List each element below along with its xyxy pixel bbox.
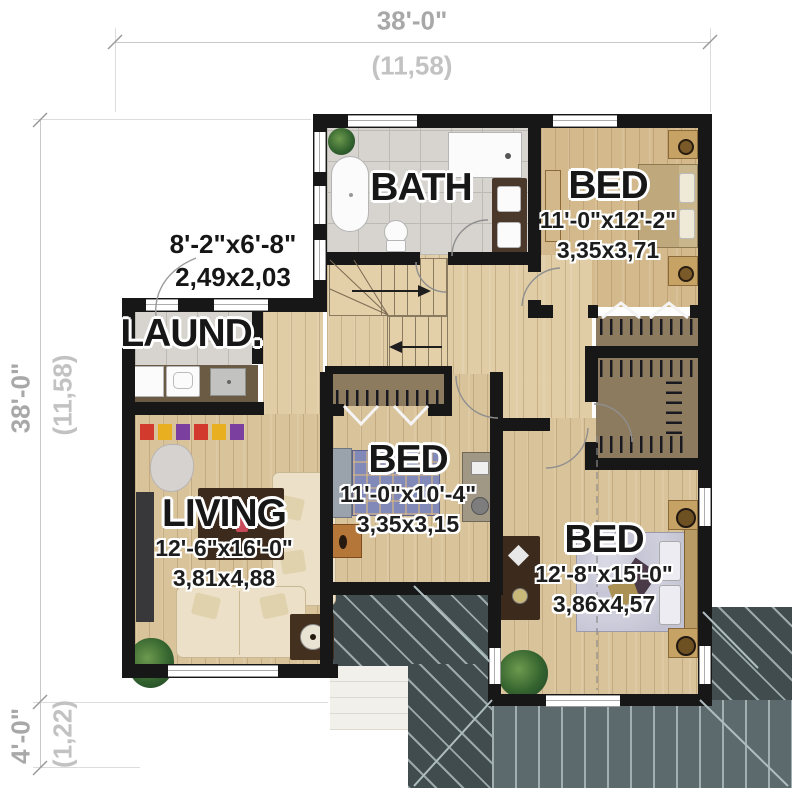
sofa <box>176 586 306 658</box>
wall <box>122 402 264 415</box>
room-dim-imperial: 12'-6"x16'-0" <box>155 533 293 563</box>
wall <box>588 305 598 318</box>
roof-section <box>408 664 492 788</box>
dim-bottomleft-metric: (1,22) <box>48 700 79 768</box>
wall <box>320 372 333 678</box>
wall <box>585 458 712 470</box>
bath-vanity <box>492 178 527 258</box>
wall <box>585 356 598 402</box>
living-label: LIVING 12'-6"x16'-0" 3,81x4,88 <box>155 494 293 594</box>
room-dim-imperial: 12'-8"x15'-0" <box>535 559 673 589</box>
room-name: LAUND. <box>120 314 261 353</box>
porch-roof <box>330 664 408 730</box>
wall <box>488 582 501 706</box>
sink <box>497 186 521 212</box>
window <box>699 646 711 684</box>
dim-left-metric: (11,58) <box>48 355 79 436</box>
dim-top-metric: (11,58) <box>372 51 453 82</box>
utility-sink <box>210 368 246 396</box>
wall <box>122 298 135 678</box>
wall <box>541 305 553 318</box>
dim-bottomleft-imperial: 4'-0" <box>6 708 37 764</box>
desk <box>498 536 540 620</box>
room-dim-metric: 3,35x3,15 <box>340 509 476 539</box>
laundry-dim-callout: 8'-2"x6'-8" 2,49x2,03 <box>170 228 297 293</box>
laundry-label: LAUND. <box>120 314 261 353</box>
stair-treads <box>381 259 447 315</box>
nightstand <box>668 628 698 658</box>
wall <box>320 404 344 416</box>
room-dim-metric: 2,49x2,03 <box>175 262 291 292</box>
window <box>699 488 711 526</box>
window <box>546 695 620 707</box>
dim-left-imperial: 38'-0" <box>6 363 37 434</box>
floor-plan: 38'-0" (11,58) 38'-0" (11,58) 4'-0" (1,2… <box>0 0 800 800</box>
dim-left-line <box>40 120 41 768</box>
room-name: BED <box>340 440 476 479</box>
window <box>348 115 417 127</box>
bed-top-label: BED 11'-0"x12'-2" 3,35x3,71 <box>540 166 676 266</box>
window <box>214 299 268 311</box>
wall <box>490 372 503 594</box>
wall <box>503 418 550 431</box>
window <box>553 115 617 127</box>
dim-top-imperial: 38'-0" <box>377 6 448 37</box>
wall <box>528 300 541 318</box>
window <box>314 240 326 280</box>
wall <box>320 582 503 595</box>
room-dim-metric: 3,86x4,57 <box>535 589 673 619</box>
room-name: BATH <box>370 168 471 207</box>
room-name: LIVING <box>155 494 293 533</box>
closet-hangers <box>600 319 694 335</box>
stair-treads <box>389 317 447 371</box>
closet-hangers <box>336 390 442 406</box>
hall-floor <box>263 308 323 416</box>
nightstand <box>668 130 698 159</box>
room-dim-imperial: 11'-0"x12'-2" <box>540 205 676 235</box>
wall <box>428 404 452 416</box>
toy-train <box>140 424 252 440</box>
window <box>314 186 326 224</box>
wall <box>585 346 712 358</box>
wall <box>698 114 712 706</box>
closet-hangers <box>600 436 688 453</box>
toilet-tank <box>386 240 406 252</box>
roof-section <box>703 607 792 700</box>
closet-hangers <box>666 380 682 434</box>
room-dim-imperial: 11'-0"x10'-4" <box>340 479 476 509</box>
bathtub <box>331 156 369 232</box>
room-dim-metric: 3,35x3,71 <box>540 235 676 265</box>
dim-top-line <box>115 42 710 43</box>
bed-headboard <box>684 528 698 636</box>
window <box>489 648 501 684</box>
window <box>146 299 178 311</box>
roof-section <box>492 700 792 788</box>
closet-hangers <box>600 360 694 377</box>
wall <box>690 305 712 318</box>
plant <box>498 650 548 698</box>
room-name: BED <box>540 166 676 205</box>
sink <box>497 222 521 248</box>
room-name: BED <box>535 520 673 559</box>
bed-mid-label: BED 11'-0"x10'-4" 3,35x3,15 <box>340 440 476 540</box>
wall <box>313 252 420 265</box>
bath-label: BATH <box>370 168 471 207</box>
extension-line <box>115 28 116 112</box>
washer <box>131 366 164 397</box>
window <box>314 132 326 172</box>
room-dim-imperial: 8'-2"x6'-8" <box>170 229 297 259</box>
bed-bottom-label: BED 12'-8"x15'-0" 3,86x4,57 <box>535 520 673 620</box>
room-dim-metric: 3,81x4,88 <box>155 563 293 593</box>
extension-line <box>710 28 711 112</box>
wall <box>325 366 452 374</box>
dryer <box>166 366 200 397</box>
extension-line <box>33 119 311 120</box>
plant <box>328 128 355 155</box>
window <box>168 665 278 677</box>
tv-unit <box>136 492 154 622</box>
